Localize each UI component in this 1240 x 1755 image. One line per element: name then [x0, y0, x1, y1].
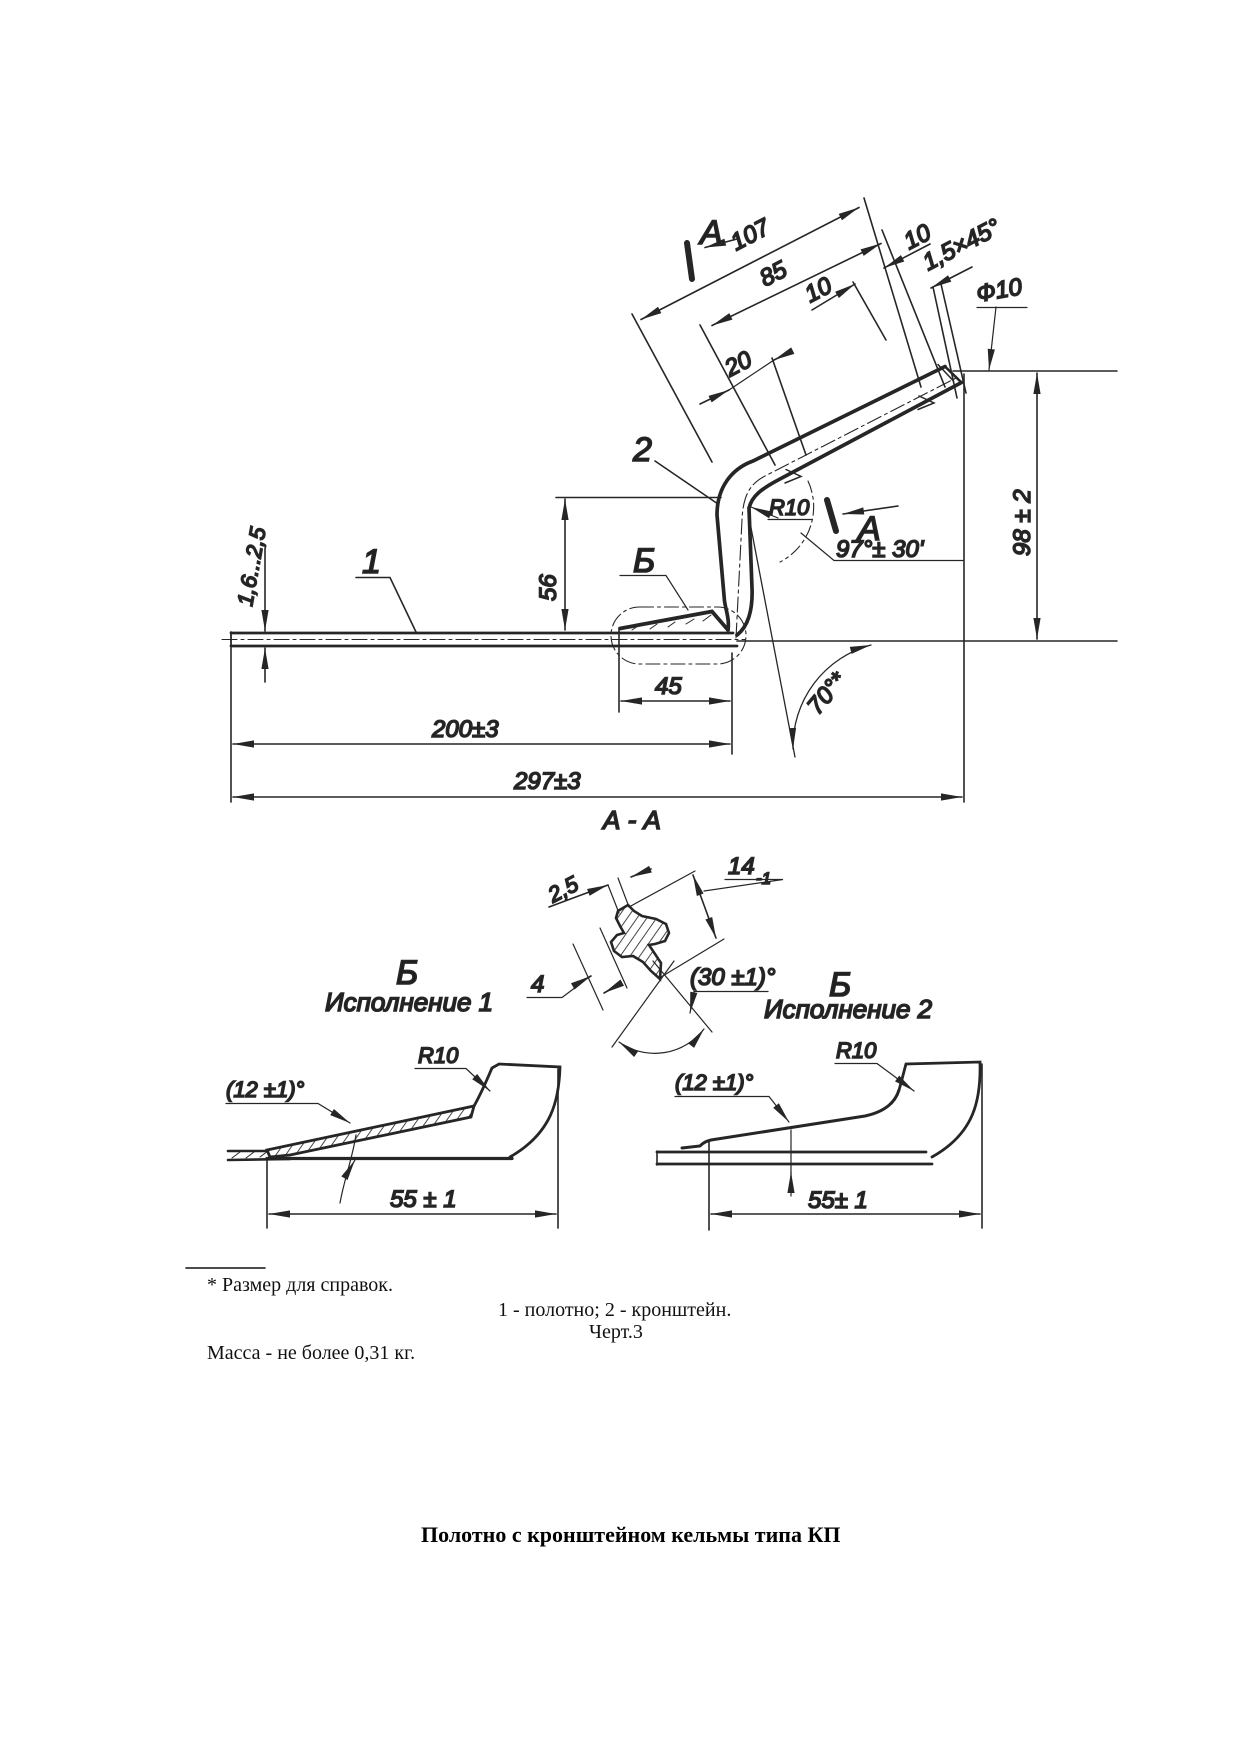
svg-text:45: 45: [655, 673, 682, 700]
svg-text:А - А: А - А: [601, 805, 661, 835]
svg-text:70°*: 70°*: [802, 667, 852, 720]
svg-text:Исполнение 1: Исполнение 1: [325, 987, 493, 1017]
svg-text:Масса - не более 0,31 кг.: Масса - не более 0,31 кг.: [207, 1342, 415, 1364]
svg-text:55± 1: 55± 1: [808, 1187, 868, 1214]
svg-text:85: 85: [755, 256, 792, 293]
svg-text:Черт.3: Черт.3: [589, 1321, 643, 1343]
svg-text:4: 4: [531, 971, 544, 998]
svg-text:* Размер для справок.: * Размер для справок.: [207, 1274, 393, 1296]
svg-text:2: 2: [632, 431, 652, 469]
svg-text:-1: -1: [756, 869, 771, 888]
svg-text:200±3: 200±3: [431, 716, 499, 743]
svg-text:10: 10: [800, 272, 837, 309]
svg-text:20: 20: [719, 346, 757, 383]
svg-text:1,5×45°: 1,5×45°: [918, 214, 1005, 277]
svg-text:Полотно с кронштейном кельмы т: Полотно с кронштейном кельмы типа КП: [421, 1522, 841, 1547]
svg-text:1: 1: [362, 543, 381, 581]
svg-text:(30 ±1)°: (30 ±1)°: [690, 964, 776, 991]
svg-text:107: 107: [726, 213, 775, 256]
svg-text:(12 ±1)°: (12 ±1)°: [226, 1077, 305, 1102]
svg-text:1 - полотно; 2 - кронштейн.: 1 - полотно; 2 - кронштейн.: [498, 1299, 731, 1321]
svg-text:98 ± 2: 98 ± 2: [1009, 489, 1036, 556]
svg-text:Исполнение 2: Исполнение 2: [764, 994, 933, 1024]
svg-text:2,5: 2,5: [543, 871, 583, 908]
svg-text:(12 ±1)°: (12 ±1)°: [675, 1070, 754, 1095]
svg-text:A: A: [698, 214, 723, 252]
svg-text:55 ± 1: 55 ± 1: [390, 1186, 457, 1213]
svg-text:Ф10: Ф10: [974, 273, 1024, 308]
svg-text:A: A: [856, 510, 881, 548]
svg-text:R10: R10: [836, 1038, 877, 1063]
svg-text:R10: R10: [418, 1043, 459, 1068]
svg-text:56: 56: [535, 574, 562, 601]
svg-text:Б: Б: [633, 542, 655, 580]
svg-text:297±3: 297±3: [513, 768, 581, 795]
svg-text:14: 14: [728, 853, 755, 880]
